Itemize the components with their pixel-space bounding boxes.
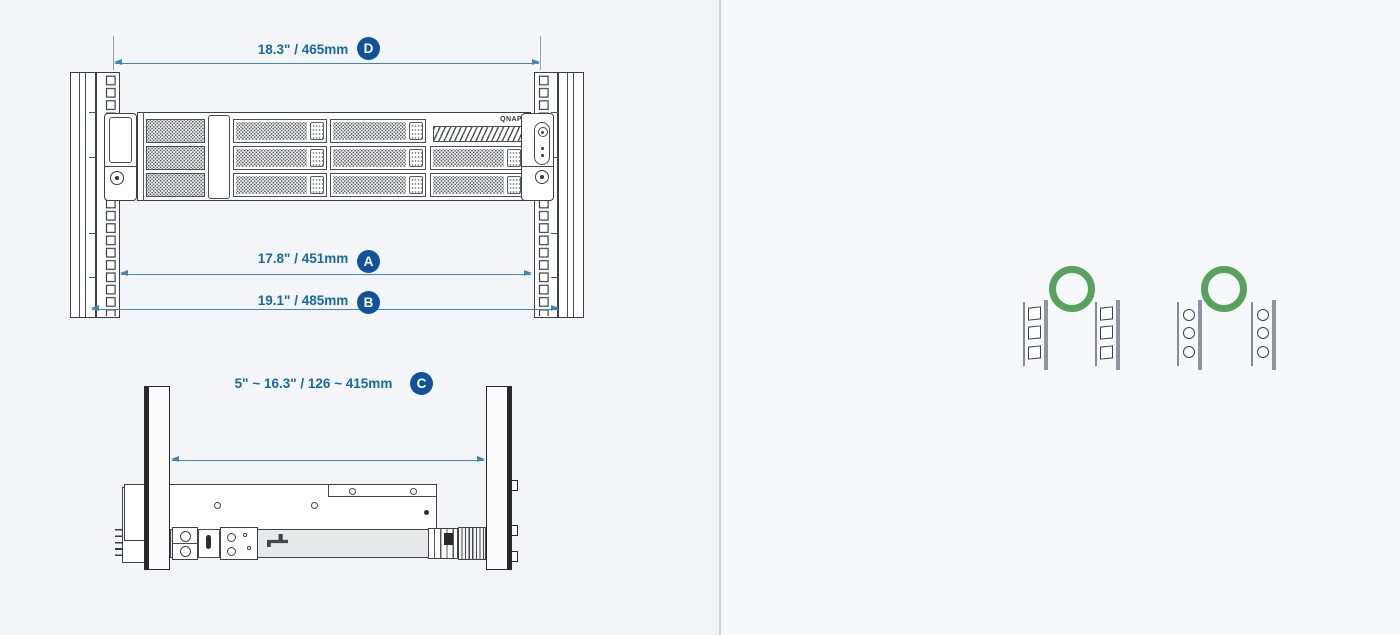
round-hole-icon bbox=[1257, 346, 1269, 358]
drive-tray-vent bbox=[236, 122, 307, 141]
drive-tray-latch-icon bbox=[409, 176, 423, 194]
square-hole-icon bbox=[1028, 345, 1041, 359]
screw-icon bbox=[311, 502, 318, 509]
round-hole-icon bbox=[1257, 309, 1269, 321]
drive-tray-latch-icon bbox=[409, 149, 423, 167]
drive-tray bbox=[430, 146, 524, 171]
rack-post-left-outer-band bbox=[70, 72, 96, 318]
screw-icon bbox=[214, 502, 221, 509]
dimension-label-c: 5" ~ 16.3" / 126 ~ 415mm bbox=[231, 376, 396, 391]
green-circle-approved-icon bbox=[1049, 266, 1095, 312]
drive-tray-latch-icon bbox=[507, 176, 521, 194]
vent-hatch-panel bbox=[433, 126, 522, 142]
vent-panel bbox=[146, 119, 205, 144]
rail-mount-interface bbox=[458, 527, 486, 560]
square-hole-icon bbox=[1028, 325, 1041, 339]
extension-line-right bbox=[540, 36, 541, 70]
rack-unit-tick bbox=[89, 233, 97, 234]
round-hole-icon bbox=[1257, 327, 1269, 339]
drive-tray bbox=[330, 173, 426, 198]
drive-tray-latch-icon bbox=[310, 149, 324, 167]
rack-unit-tick bbox=[89, 277, 97, 278]
chassis-edge-line bbox=[143, 112, 144, 201]
dimension-arrow-a bbox=[121, 274, 531, 275]
post-rail-bar bbox=[1272, 300, 1276, 370]
rail-hole-icon bbox=[180, 546, 191, 557]
rail-hole-icon bbox=[227, 547, 236, 556]
drive-tray-vent bbox=[333, 122, 406, 141]
rail-end-bracket bbox=[428, 528, 458, 559]
drive-tray-latch-icon bbox=[507, 149, 521, 167]
post-edge-line bbox=[1177, 302, 1179, 366]
square-hole-icon bbox=[1028, 306, 1041, 320]
rack-hole-type-panel-background bbox=[721, 0, 1400, 635]
power-button-icon bbox=[538, 127, 548, 137]
rail-pin-icon bbox=[247, 546, 251, 550]
dimension-badge-b: B bbox=[357, 291, 380, 314]
rail-lock-lever-icon bbox=[206, 535, 211, 549]
screw-icon bbox=[410, 488, 417, 495]
status-led-icon bbox=[541, 147, 544, 150]
panel-divider-highlight bbox=[716, 0, 717, 635]
drive-tray bbox=[330, 119, 426, 144]
drive-tray bbox=[233, 146, 327, 171]
rack-unit-tick bbox=[551, 277, 559, 278]
drive-tray-latch-icon bbox=[310, 122, 324, 140]
square-hole-icon bbox=[1100, 306, 1113, 320]
screw-icon bbox=[349, 488, 356, 495]
drive-tray-vent bbox=[433, 176, 504, 195]
dimension-label-a: 17.8" / 451mm bbox=[238, 251, 368, 266]
ear-divider-line bbox=[105, 166, 136, 167]
ear-divider-line bbox=[522, 166, 553, 167]
drive-tray-vent bbox=[433, 149, 504, 168]
rack-unit-tick bbox=[89, 157, 97, 158]
ear-handle bbox=[109, 117, 132, 163]
round-hole-icon bbox=[1183, 309, 1195, 321]
drive-tray-vent bbox=[236, 176, 307, 195]
rail-hole-icon bbox=[227, 533, 236, 542]
post-rail-bar bbox=[1198, 300, 1202, 370]
square-hole-post bbox=[1095, 300, 1120, 370]
chassis-divider-strip bbox=[208, 115, 230, 199]
post-edge-line bbox=[1095, 302, 1097, 366]
rack-unit-tick bbox=[89, 112, 97, 113]
rail-pin-icon bbox=[243, 533, 247, 537]
green-circle-approved-icon bbox=[1201, 266, 1247, 312]
rail-bracket-plate bbox=[220, 527, 258, 560]
rail-latch-block bbox=[444, 533, 453, 545]
rear-connector-fins bbox=[115, 529, 123, 556]
dimension-badge-d: D bbox=[357, 37, 380, 60]
drive-tray bbox=[233, 173, 327, 198]
vent-panel bbox=[146, 146, 205, 171]
drive-tray bbox=[233, 119, 327, 144]
dimension-badge-a: A bbox=[357, 250, 380, 273]
chassis-top-step bbox=[328, 484, 437, 497]
rack-post-right-side bbox=[486, 386, 512, 570]
rail-hole-icon bbox=[180, 531, 191, 542]
drive-tray bbox=[330, 146, 426, 171]
square-hole-post bbox=[1023, 300, 1048, 370]
drive-tray-vent bbox=[333, 176, 406, 195]
ear-screw-icon bbox=[110, 171, 124, 185]
rack-mount-dimensions-page: 18.3" / 465mm D bbox=[0, 0, 1400, 635]
round-hole-icon bbox=[1183, 346, 1195, 358]
qnap-logo: QNAP bbox=[490, 115, 522, 124]
square-hole-icon bbox=[1100, 325, 1113, 339]
dimension-arrow-d bbox=[115, 63, 539, 64]
post-edge-line bbox=[1251, 302, 1253, 366]
dimension-arrow-c bbox=[172, 460, 484, 461]
dimension-arrow-b bbox=[92, 309, 558, 310]
rack-post-right-outer-band bbox=[558, 72, 584, 318]
drive-tray-latch-icon bbox=[310, 176, 324, 194]
drive-tray bbox=[430, 173, 524, 198]
drive-tray-vent bbox=[333, 149, 406, 168]
dimension-label-b: 19.1" / 485mm bbox=[238, 293, 368, 308]
round-hole-post bbox=[1177, 300, 1202, 370]
drive-tray-vent bbox=[236, 149, 307, 168]
rack-unit-tick bbox=[551, 233, 559, 234]
dimension-label-d: 18.3" / 465mm bbox=[238, 42, 368, 57]
screw-icon bbox=[424, 510, 429, 515]
status-led-icon bbox=[541, 154, 544, 157]
rack-post-left-side bbox=[144, 386, 170, 570]
round-hole-icon bbox=[1183, 327, 1195, 339]
post-rail-bar bbox=[1116, 300, 1120, 370]
post-edge-line bbox=[1023, 302, 1025, 366]
ear-screw-icon bbox=[535, 170, 549, 184]
round-hole-post bbox=[1251, 300, 1276, 370]
dimension-badge-c: C bbox=[410, 372, 433, 395]
rail-bracket-divider bbox=[173, 543, 197, 544]
vent-panel bbox=[146, 173, 205, 198]
square-hole-icon bbox=[1100, 345, 1113, 359]
drive-tray-latch-icon bbox=[409, 122, 423, 140]
post-rail-bar bbox=[1044, 300, 1048, 370]
